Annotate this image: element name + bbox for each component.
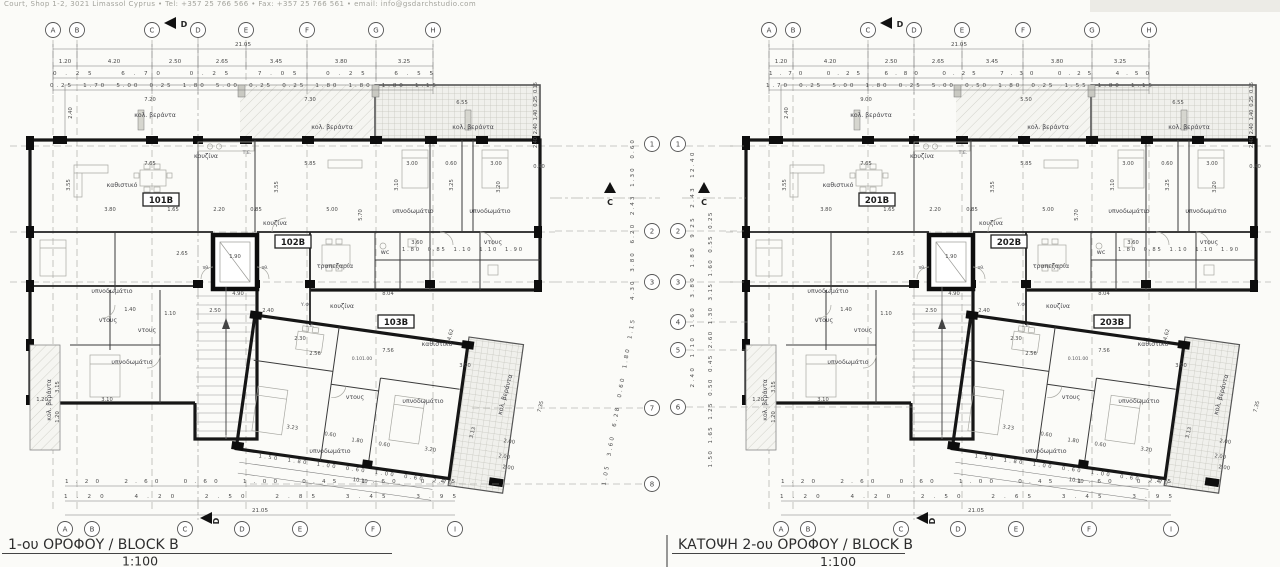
dim-label: 0.85 xyxy=(966,207,978,213)
dim-label: 0.85 xyxy=(250,207,262,213)
room-label-veranda: κολ. βεράντα xyxy=(850,111,892,119)
grid-bubble-label: 6 xyxy=(676,404,681,412)
grid-bubble-label: F xyxy=(305,27,309,35)
dim-total: 21.05 xyxy=(235,42,251,48)
dim-label: 7.65 xyxy=(860,161,872,167)
scanned-floor-plan-sheet: Court, Shop 1-2, 3021 Limassol Cyprus • … xyxy=(0,0,1280,567)
room-label-veranda: κολ. βεράντα xyxy=(311,123,353,131)
grid-bubble-label: C xyxy=(150,27,155,35)
dim-label: 3.20 xyxy=(496,181,502,193)
room-label-te: Τ.Ε. xyxy=(242,150,252,156)
dim-label: 7.20 xyxy=(144,97,156,103)
dim-row: 2.40 2.40 1.40 0.25 0.15 xyxy=(533,82,539,148)
grid-bubble-label: G xyxy=(373,27,378,35)
room-label-bedroom: υπνοδωμάτιο xyxy=(807,287,848,295)
grid-bubble-label: 5 xyxy=(676,347,680,355)
grid-bubble-label: E xyxy=(244,27,248,35)
dim-label: 3.15 xyxy=(771,381,777,393)
grid-bubble-label: C xyxy=(866,27,871,35)
dim-label: 2.50 xyxy=(925,308,937,314)
room-label-bedroom: υπνοδωμάτιο xyxy=(469,207,510,215)
dim-row: 2.40 2.40 1.40 0.25 0.15 xyxy=(1249,82,1255,148)
dim-label: 3.45 xyxy=(270,59,283,65)
dim-label: 0.40 xyxy=(533,164,545,170)
dim-label: 1.90 xyxy=(229,254,241,260)
room-label-dining: τραπεζαρία xyxy=(317,262,353,270)
room-label-shower: ντους xyxy=(1062,394,1081,401)
room-label-bedroom: υπνοδωμάτιο xyxy=(91,287,132,295)
grid-bubble-label: F xyxy=(1087,526,1091,534)
room-label-bedroom: υπνοδωμάτιο xyxy=(1025,447,1066,455)
room-label-shower: ντους xyxy=(815,317,834,324)
dim-label: 2.65 xyxy=(932,59,945,65)
room-label-bedroom: υπνοδωμάτιο xyxy=(1108,207,1149,215)
dim-label: 7.65 xyxy=(144,161,156,167)
section-marker-c: C xyxy=(607,198,613,207)
section-marker-c: C xyxy=(701,198,707,207)
dim-label: 2.40 xyxy=(978,308,990,314)
dim-label: 2.65 xyxy=(892,251,904,257)
dim-label: 3.55 xyxy=(66,179,72,191)
section-marker-d-bottom: D xyxy=(212,517,221,524)
dim-label: 5.50 xyxy=(1020,97,1032,103)
room-label-bedroom: υπνοδωμάτιο xyxy=(402,397,443,405)
dim-label: 2.40 xyxy=(262,308,274,314)
dim-label: 1.10 xyxy=(880,311,892,317)
grid-bubble-label: 4 xyxy=(676,319,681,327)
dim-label: 8.04 xyxy=(1098,291,1110,297)
plan-scale: 1:100 xyxy=(122,554,158,567)
dim-row: 1.50 1.65 1.25 0.50 0.45 2.60 1.30 3.15 … xyxy=(708,212,714,467)
section-marker-d-bottom: D xyxy=(928,517,937,524)
dim-label: 3.25 xyxy=(398,59,411,65)
dim-label: 5.70 xyxy=(1074,209,1080,221)
grid-bubble-label: F xyxy=(371,526,375,534)
dim-label: 2.20 xyxy=(929,207,941,213)
grid-bubble-label: D xyxy=(911,27,916,35)
unit-badge: 101B xyxy=(149,196,173,206)
dim-label: 3.45 xyxy=(986,59,999,65)
floor-plan-canvas: Court, Shop 1-2, 3021 Limassol Cyprus • … xyxy=(0,0,1280,567)
room-label-shower: ντους xyxy=(138,327,157,334)
dim-label: 2.40 xyxy=(68,107,74,119)
dim-label: 3.55 xyxy=(782,179,788,191)
unit-badge: 202B xyxy=(997,238,1021,248)
plan-title: ΚΑΤΟΨΗ 2-ου ΟΡΟΦΟΥ / BLOCK B xyxy=(678,537,913,553)
room-label-bedroom: υπνοδωμάτιο xyxy=(1118,397,1159,405)
room-label-shower: ντους xyxy=(346,394,365,401)
dim-label: 3.90 xyxy=(459,363,471,369)
dim-label: 2.30 xyxy=(294,336,306,342)
dim-label: 1.20 xyxy=(752,397,764,403)
dim-label: 3.55 xyxy=(274,181,280,193)
dim-label: 3.80 xyxy=(1051,59,1064,65)
dim-label: 3.00 xyxy=(1206,161,1218,167)
dim-total: 21.05 xyxy=(252,508,268,514)
dim-label: 1.65 xyxy=(883,207,895,213)
room-label-living: καθιστικό xyxy=(107,181,138,189)
room-label-bedroom: υπνοδωμάτιο xyxy=(827,358,868,366)
room-label-kitchen: κουζίνα xyxy=(1046,302,1070,310)
dim-label: 0.60 xyxy=(445,161,457,167)
scan-artifact xyxy=(1090,0,1280,12)
dim-label: 0.40 xyxy=(1249,164,1261,170)
grid-bubble-label: I xyxy=(1170,526,1172,534)
room-label-veranda: κολ. βεράντα xyxy=(1168,123,1210,131)
room-label-kitchen: κουζίνα xyxy=(263,219,287,227)
dim-label: 3.25 xyxy=(449,179,455,191)
grid-bubble-label: 1 xyxy=(676,141,680,149)
dim-label: 1.40 xyxy=(124,307,136,313)
dim-label: 2.50 xyxy=(885,59,898,65)
unit-badge: 203B xyxy=(1100,318,1124,328)
dim-label: 1.20 xyxy=(775,59,788,65)
grid-bubble-label: D xyxy=(195,27,200,35)
room-label-wc: wc xyxy=(381,249,390,256)
dim-label: 1.40 xyxy=(840,307,852,313)
room-label-kitchen: κουζίνα xyxy=(330,302,354,310)
grid-bubble-label: I xyxy=(454,526,456,534)
dim-label: 5.70 xyxy=(358,209,364,221)
plan-title: 1-ου ΟΡΟΦΟΥ / BLOCK B xyxy=(8,537,179,553)
room-label-living: καθιστικό xyxy=(823,181,854,189)
grid-bubble-label: E xyxy=(960,27,964,35)
grid-bubble-label: E xyxy=(1014,526,1018,534)
dim-label: 3.10 xyxy=(1110,179,1116,191)
dim-row: 1.80 0.85 1.10 1.10 1.90 xyxy=(1118,247,1238,253)
room-label-te: Τ.Ε. xyxy=(958,150,968,156)
room-label-dining: τραπεζαρία xyxy=(1033,262,1069,270)
dim-label: 3.80 xyxy=(820,207,832,213)
dim-label: 3.00 xyxy=(406,161,418,167)
dim-label: 2.40 xyxy=(784,107,790,119)
dim-label: 1.20 xyxy=(55,411,61,423)
dim-total: 21.05 xyxy=(968,508,984,514)
dim-label: 3.00 xyxy=(490,161,502,167)
dim-label: 3.80 xyxy=(104,207,116,213)
room-label-landing: πθ. xyxy=(202,265,209,271)
dim-label: 1.20 xyxy=(771,411,777,423)
grid-bubble-label: A xyxy=(779,526,784,534)
dim-label: 3.60 xyxy=(411,240,423,246)
unit-badge: 103B xyxy=(384,318,408,328)
dim-label: 2.56 xyxy=(1025,351,1037,357)
dim-label: 3.60 xyxy=(1127,240,1139,246)
grid-bubble-label: 2 xyxy=(650,228,654,236)
dim-label: 5.85 xyxy=(1020,161,1032,167)
room-label-te: Τ.Ε. xyxy=(305,323,315,329)
dim-label: 1.90 xyxy=(945,254,957,260)
grid-bubble-label: 7 xyxy=(650,405,654,413)
room-label-shower: ντους xyxy=(99,317,118,324)
dim-label: 2.65 xyxy=(216,59,229,65)
grid-bubble-label: B xyxy=(806,526,811,534)
dim-label: 4.90 xyxy=(232,291,244,297)
dim-label: 7.56 xyxy=(1098,348,1110,354)
room-label-veranda: κολ. βεράντα xyxy=(134,111,176,119)
dim-label: 7.30 xyxy=(304,97,316,103)
dim-total: 21.05 xyxy=(951,42,967,48)
dim-label: 3.80 xyxy=(335,59,348,65)
dim-label: 9.00 xyxy=(860,97,872,103)
room-label-bedroom: υπνοδωμάτιο xyxy=(392,207,433,215)
grid-bubble-label: 1 xyxy=(650,141,654,149)
room-label-kitchen: κουζίνα xyxy=(194,152,218,160)
room-label-landing: πθ. xyxy=(918,265,925,271)
dim-label: 5.00 xyxy=(326,207,338,213)
room-label-bedroom: υπνοδωμάτιο xyxy=(309,447,350,455)
room-label-bedroom: υπνοδωμάτιο xyxy=(1185,207,1226,215)
dim-label: 1.20 xyxy=(59,59,72,65)
grid-bubble-label: A xyxy=(51,27,56,35)
dim-label: 0.60 xyxy=(1161,161,1173,167)
label-yf: Υ.Φ xyxy=(1016,302,1025,308)
room-label-kitchen: κουζίνα xyxy=(979,219,1003,227)
grid-bubble-label: A xyxy=(63,526,68,534)
dim-label: 3.25 xyxy=(1114,59,1127,65)
grid-bubble-label: H xyxy=(1146,27,1151,35)
grid-bubble-label: C xyxy=(899,526,904,534)
room-label-shower: ντους xyxy=(854,327,873,334)
grid-bubble-label: F xyxy=(1021,27,1025,35)
section-marker-d-top: D xyxy=(181,20,188,29)
room-label-veranda: κολ. βεράντα xyxy=(452,123,494,131)
dim-label: 2.56 xyxy=(309,351,321,357)
room-label-landing: πθ. xyxy=(977,265,984,271)
dim-label: 3.55 xyxy=(990,181,996,193)
dim-label: 4.90 xyxy=(948,291,960,297)
dim-label: 3.25 xyxy=(1165,179,1171,191)
grid-bubble-label: B xyxy=(791,27,796,35)
dim-label: 4.20 xyxy=(108,59,121,65)
grid-bubble-label: A xyxy=(767,27,772,35)
room-label-shower: ντους xyxy=(484,239,503,246)
grid-bubble-label: C xyxy=(183,526,188,534)
dim-label: 2.50 xyxy=(169,59,182,65)
grid-bubble-label: E xyxy=(298,526,302,534)
dim-label: 5.85 xyxy=(304,161,316,167)
grid-bubble-label: H xyxy=(430,27,435,35)
dim-label: 2.50 xyxy=(209,308,221,314)
dim-label: 8.04 xyxy=(382,291,394,297)
room-label-living: καθιστικό xyxy=(422,340,453,348)
room-label-living: καθιστικό xyxy=(1138,340,1169,348)
grid-bubble-label: D xyxy=(239,526,244,534)
plan-scale: 1:100 xyxy=(820,554,856,567)
dim-label: 2.30 xyxy=(1010,336,1022,342)
dim-label: 3.10 xyxy=(101,397,113,403)
dim-label: 3.10 xyxy=(817,397,829,403)
room-label-te: Τ.Ε. xyxy=(1021,323,1031,329)
grid-bubble-label: D xyxy=(955,526,960,534)
dim-label: 3.90 xyxy=(1175,363,1187,369)
dim-label: 1.20 xyxy=(36,397,48,403)
dim-label: 3.10 xyxy=(394,179,400,191)
grid-bubble-label: G xyxy=(1089,27,1094,35)
grid-bubble-label: B xyxy=(75,27,80,35)
room-label-wc: wc xyxy=(1097,249,1106,256)
label-yf: Υ.Φ xyxy=(300,302,309,308)
dim-label: 1.10 xyxy=(164,311,176,317)
unit-badge: 201B xyxy=(865,196,889,206)
dim-label: 4.20 xyxy=(824,59,837,65)
dim-label: 3.15 xyxy=(55,381,61,393)
dim-label: 6.55 xyxy=(1172,100,1184,106)
grid-bubble-label: 8 xyxy=(650,481,654,489)
grid-bubble-label: 3 xyxy=(676,279,680,287)
dim-label: 3.00 xyxy=(1122,161,1134,167)
room-label-landing: πθ. xyxy=(261,265,268,271)
unit-badge: 102B xyxy=(281,238,305,248)
room-label-kitchen: κουζίνα xyxy=(910,152,934,160)
room-label-shower: ντους xyxy=(1200,239,1219,246)
dim-label: 3.20 xyxy=(1212,181,1218,193)
dim-label: 1.65 xyxy=(167,207,179,213)
dim-label: 5.00 xyxy=(1042,207,1054,213)
header-contact-line: Court, Shop 1-2, 3021 Limassol Cyprus • … xyxy=(4,0,476,8)
level-mark: 0.101.00 xyxy=(352,356,373,362)
room-label-veranda: κολ. βεράντα xyxy=(1027,123,1069,131)
grid-bubble-label: B xyxy=(90,526,95,534)
dim-label: 2.65 xyxy=(176,251,188,257)
level-mark: 0.101.00 xyxy=(1068,356,1089,362)
grid-bubble-label: 3 xyxy=(650,279,654,287)
dim-label: 6.55 xyxy=(456,100,468,106)
dim-label: 2.20 xyxy=(213,207,225,213)
dim-row: 1.80 0.85 1.10 1.10 1.90 xyxy=(402,247,522,253)
room-label-bedroom: υπνοδωμάτιο xyxy=(111,358,152,366)
section-marker-d-top: D xyxy=(897,20,904,29)
grid-bubble-label: 2 xyxy=(676,228,680,236)
dim-label: 7.56 xyxy=(382,348,394,354)
